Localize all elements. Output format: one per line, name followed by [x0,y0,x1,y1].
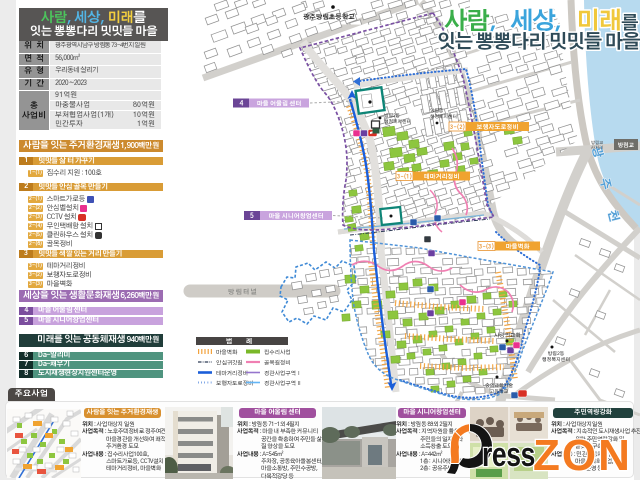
svg-text:보행자도로정비: 보행자도로정비 [477,123,519,131]
svg-text:마을 시니어창업센터: 마을 시니어창업센터 [268,212,323,220]
svg-text:골목길정비: 골목길정비 [264,360,291,367]
svg-text:방림2동: 방림2동 [548,351,565,356]
svg-text:보행자도로정비: 보행자도로정비 [216,380,253,387]
svg-text:,: , [489,12,497,34]
svg-text:숭의과학기술: 숭의과학기술 [485,382,513,388]
svg-text:5: 5 [250,213,254,220]
svg-text:테마거리정비: 테마거리정비 [216,370,248,377]
svg-text:사거리: 사거리 [590,145,603,150]
svg-text:ress: ress [482,436,535,474]
svg-text:마을 어울림 센터: 마을 어울림 센터 [257,100,302,108]
svg-text:3-(3): 3-(3) [479,244,494,251]
svg-text:세상: 세상 [510,8,555,34]
svg-text:3-(1): 3-(1) [397,174,412,181]
svg-text:범 례: 범 례 [226,338,259,346]
svg-text:집수리사업: 집수리사업 [264,349,291,356]
svg-text:마을벽화: 마을벽화 [216,349,238,356]
svg-text:ZON: ZON [533,431,632,478]
svg-text:사람: 사람 [443,8,489,34]
svg-text:경관사업구역Ⅰ: 경관사업구역Ⅰ [264,370,302,377]
svg-text:고등학교: 고등학교 [490,388,509,394]
svg-text:방림터널: 방림터널 [228,288,258,296]
svg-text:를: 를 [621,14,639,33]
svg-text:테마거리정비: 테마거리정비 [424,173,460,181]
svg-text:미래: 미래 [576,8,621,34]
svg-text:행정복지센터: 행정복지센터 [384,118,411,124]
svg-text:행정복지센터: 행정복지센터 [542,356,570,362]
svg-text:양림동: 양림동 [430,108,444,113]
svg-text:안심귀갓길: 안심귀갓길 [216,360,243,367]
svg-text:3-(2): 3-(2) [450,124,465,131]
svg-text:사랑의교회: 사랑의교회 [493,332,521,339]
svg-text:방림2동: 방림2동 [384,113,401,118]
svg-text:방림교: 방림교 [591,140,603,145]
svg-text:마을벽화: 마을벽화 [506,243,530,251]
svg-text:방림교: 방림교 [618,142,634,149]
svg-text:광주방림초등학교: 광주방림초등학교 [303,13,355,21]
svg-text:행정복지센터: 행정복지센터 [430,113,457,119]
svg-text:,: , [554,12,562,34]
svg-text:경관사업구역Ⅱ: 경관사업구역Ⅱ [264,380,302,387]
svg-text:4: 4 [239,101,243,108]
svg-text:잇는 뽕뽕다리 밋밋들 마을: 잇는 뽕뽕다리 밋밋들 마을 [437,31,640,52]
